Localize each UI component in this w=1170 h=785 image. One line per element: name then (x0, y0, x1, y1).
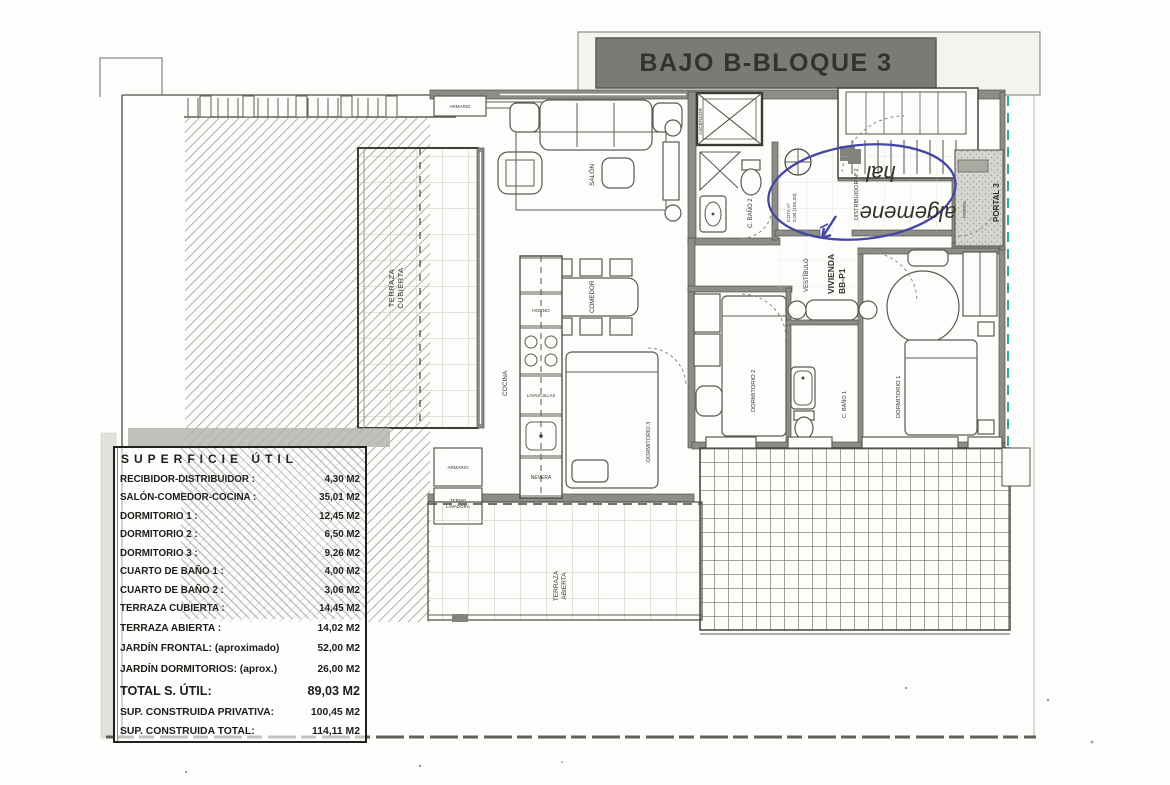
row-value: 35,01 M2 (319, 492, 360, 503)
label-cocina: COCINA (502, 370, 509, 396)
row-value: 14,02 M2 (318, 623, 360, 634)
annotation-word1: algemene (860, 201, 957, 226)
label-bano2: C. BAÑO 2 (747, 198, 754, 228)
label-salon: SALÓN (587, 164, 596, 186)
row-label: JARDÍN FRONTAL: (aproximado) (120, 643, 279, 654)
label-distribuidor: DISTRIBUIDOR Nº 2 (853, 168, 860, 220)
dormitorio2: DORMITORIO 2 (694, 294, 786, 436)
elevator: ASCENSOR (697, 93, 762, 145)
label-nevera: NEVERA (531, 475, 552, 481)
floor-plan-scan: BAJO B-BLOQUE 3 TERRAZACUBIERTA (0, 0, 1170, 785)
table-row-sup-privativa: SUP. CONSTRUIDA PRIVATIVA:100,45 M2 (115, 703, 365, 722)
label-ascensor: ASCENSOR (698, 108, 704, 135)
table-row: CUARTO DE BAÑO 2 :3,06 M2 (115, 581, 365, 600)
label-bano1: C. BAÑO 1 (841, 391, 848, 418)
row-value: 4,00 M2 (325, 566, 360, 577)
label-horno: HORNO (532, 308, 550, 314)
label-armario-cocina: ARMARIO (447, 465, 469, 470)
salon: SALÓN (498, 100, 682, 221)
label-dormitorio2: DORMITORIO 2 (751, 370, 757, 412)
label-dormitorio1: DORMITORIO 1 (896, 376, 902, 418)
bano1: C. BAÑO 1 (791, 367, 848, 439)
row-label: JARDÍN DORMITORIOS: (aprox.) (120, 664, 277, 675)
row-value: 26,00 M2 (318, 664, 360, 675)
table-row: JARDÍN DORMITORIOS: (aprox.)26,00 M2 (115, 659, 365, 680)
dormitorio1: DORMITORIO 1 (867, 250, 997, 435)
label-comedor: COMEDOR (589, 280, 596, 313)
bathroom2: C. BAÑO 2 (700, 152, 772, 238)
row-value: 52,00 M2 (318, 643, 360, 654)
table-row: TERRAZA ABIERTA :14,02 M2 (115, 618, 365, 639)
title-banner: BAJO B-BLOQUE 3 (578, 32, 1040, 95)
row-value: 4,30 M2 (325, 474, 360, 485)
table-header: SUPERFICIE ÚTIL (115, 448, 365, 470)
row-label: SALÓN-COMEDOR-COCINA : (120, 492, 256, 503)
label-terraza-cubierta: TERRAZACUBIERTA (387, 267, 405, 308)
label-lavavajillas: LAVAVAJILLAS (527, 393, 556, 398)
row-value: 6,50 M2 (325, 529, 360, 540)
table-row: DORMITORIO 1 :12,45 M2 (115, 507, 365, 526)
row-label: SUP. CONSTRUIDA TOTAL: (120, 726, 255, 737)
row-label: RECIBIDOR-DISTRIBUIDOR : (120, 474, 255, 485)
terraza-abierta: TERRAZAABIERTA (428, 502, 702, 622)
table-row: DORMITORIO 2 :6,50 M2 (115, 526, 365, 545)
table-row-total: TOTAL S. ÚTIL:89,03 M2 (115, 680, 365, 703)
label-armario-entrada: ARMARIO (449, 104, 471, 109)
label-terraza-abierta: TERRAZAABIERTA (553, 570, 568, 601)
jardin-dormitorios-grid (700, 437, 1030, 634)
row-value: 9,26 M2 (325, 548, 360, 559)
row-label: DORMITORIO 1 : (120, 511, 198, 522)
row-label: TERRAZA CUBIERTA : (120, 603, 225, 614)
label-dormitorio3: DORMITORIO 3 (646, 422, 652, 462)
row-label: DORMITORIO 2 : (120, 529, 198, 540)
row-label: DORMITORIO 3 : (120, 548, 198, 559)
row-label: TERRAZA ABIERTA : (120, 623, 221, 634)
label-portal: PORTAL (962, 200, 967, 218)
row-label: CUARTO DE BAÑO 1 : (120, 566, 224, 577)
dormitorio3: DORMITORIO 3 (566, 348, 686, 488)
row-value: 114,11 M2 (312, 726, 360, 737)
row-value: 100,45 M2 (311, 707, 360, 718)
row-value: 14,45 M2 (319, 603, 360, 614)
row-value: 89,03 M2 (307, 684, 360, 698)
table-row: CUARTO DE BAÑO 1 :4,00 M2 (115, 563, 365, 582)
label-portal3: PORTAL 3 (992, 183, 1001, 222)
table-row-sup-total: SUP. CONSTRUIDA TOTAL:114,11 M2 (115, 722, 365, 741)
row-value: 3,06 M2 (325, 585, 360, 596)
banner-title: BAJO B-BLOQUE 3 (639, 49, 892, 77)
annotation-word2: hal (865, 161, 895, 186)
table-row: RECIBIDOR-DISTRIBUIDOR :4,30 M2 (115, 470, 365, 489)
surface-area-table: SUPERFICIE ÚTIL RECIBIDOR-DISTRIBUIDOR :… (113, 446, 367, 743)
table-row: DORMITORIO 3 :9,26 M2 (115, 544, 365, 563)
label-vestibulo: VESTÍBULO (803, 258, 810, 292)
row-label: SUP. CONSTRUIDA PRIVATIVA: (120, 707, 274, 718)
row-value: 12,45 M2 (319, 511, 360, 522)
table-row: TERRAZA CUBIERTA :14,45 M2 (115, 600, 365, 619)
row-label: CUARTO DE BAÑO 2 : (120, 585, 224, 596)
table-row: JARDÍN FRONTAL: (aproximado)52,00 M2 (115, 639, 365, 660)
terraza-cubierta: TERRAZACUBIERTA (358, 148, 478, 428)
row-label: TOTAL S. ÚTIL: (120, 684, 212, 698)
table-row: SALÓN-COMEDOR-COCINA :35,01 M2 (115, 489, 365, 508)
